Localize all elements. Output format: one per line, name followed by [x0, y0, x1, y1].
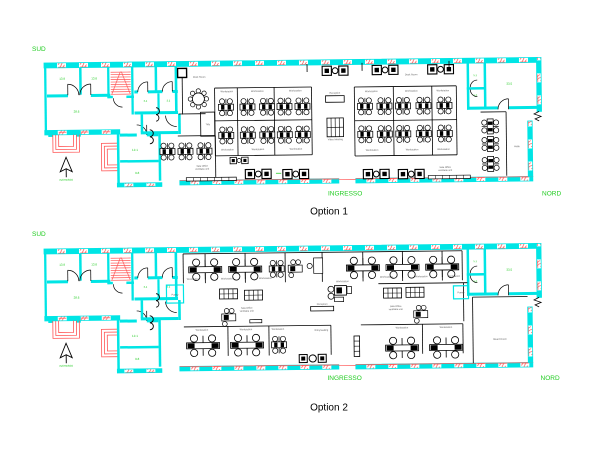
svg-text:Workstation: Workstation: [289, 89, 302, 92]
svg-text:INGRESSO: INGRESSO: [328, 191, 362, 198]
svg-text:Reception: Reception: [317, 303, 328, 306]
svg-text:INGRESSO: INGRESSO: [59, 178, 73, 182]
svg-text:5.0: 5.0: [474, 279, 478, 283]
svg-text:28.6: 28.6: [74, 296, 80, 300]
svg-text:Entry/waiting: Entry/waiting: [315, 329, 329, 332]
svg-text:13.6: 13.6: [91, 262, 97, 266]
svg-text:Workstation: Workstation: [396, 326, 409, 329]
svg-text:Hallo: Hallo: [514, 145, 520, 148]
svg-text:9.8: 9.8: [135, 357, 140, 361]
svg-text:5.1: 5.1: [473, 259, 477, 263]
svg-text:Workstation: Workstation: [448, 275, 461, 278]
svg-text:Option 2: Option 2: [310, 403, 348, 414]
svg-text:Tidy: Tidy: [205, 123, 210, 126]
svg-text:3.4: 3.4: [144, 285, 148, 289]
svg-text:33.5: 33.5: [506, 82, 512, 86]
svg-text:ventilatie unit: ventilatie unit: [389, 308, 403, 311]
svg-text:Workstation: Workstation: [336, 280, 349, 283]
svg-text:13.6: 13.6: [91, 76, 97, 80]
svg-text:3.4: 3.4: [144, 99, 148, 103]
svg-text:Workstation: Workstation: [221, 277, 234, 280]
svg-text:Desk Room: Desk Room: [193, 76, 206, 79]
svg-text:Workstation: Workstation: [221, 90, 234, 93]
svg-text:Workstation: Workstation: [440, 326, 453, 329]
svg-text:3.2: 3.2: [167, 99, 171, 103]
svg-text:ventilatie unit: ventilatie unit: [438, 169, 452, 172]
svg-text:Pantry: Pantry: [172, 293, 180, 296]
svg-text:Option 1: Option 1: [310, 207, 348, 218]
svg-text:Workstation: Workstation: [365, 90, 378, 93]
svg-text:9.8: 9.8: [135, 171, 140, 175]
svg-text:Workstation: Workstation: [437, 148, 450, 151]
svg-text:NORD: NORD: [542, 191, 561, 198]
svg-text:Workstation: Workstation: [252, 148, 265, 151]
svg-text:12.1: 12.1: [132, 334, 138, 338]
svg-text:Workstation: Workstation: [272, 328, 285, 331]
svg-text:Workstation: Workstation: [366, 149, 379, 152]
svg-text:Workstation: Workstation: [415, 275, 428, 278]
svg-text:Workstation: Workstation: [251, 90, 264, 93]
svg-text:NORD: NORD: [541, 375, 560, 382]
svg-text:INGRESSO: INGRESSO: [59, 364, 73, 368]
svg-text:33.5: 33.5: [506, 268, 512, 272]
svg-text:13.9: 13.9: [59, 77, 65, 81]
svg-text:13.9: 13.9: [59, 263, 65, 267]
svg-text:Workstation: Workstation: [437, 89, 450, 92]
svg-text:Reception: Reception: [329, 92, 340, 95]
svg-text:28.6: 28.6: [74, 110, 80, 114]
svg-text:Workstation: Workstation: [406, 148, 419, 151]
svg-text:Video Meeting: Video Meeting: [328, 138, 344, 141]
svg-text:SUD: SUD: [32, 46, 46, 53]
svg-text:SUD: SUD: [32, 231, 46, 238]
svg-text:Workstation: Workstation: [221, 148, 234, 151]
svg-text:INGRESSO: INGRESSO: [328, 375, 362, 382]
svg-text:Workstation: Workstation: [187, 278, 200, 281]
svg-text:Desk Room: Desk Room: [405, 73, 418, 76]
svg-text:Board Room: Board Room: [493, 338, 506, 341]
svg-text:Workstation: Workstation: [259, 277, 272, 280]
svg-text:5.1: 5.1: [473, 73, 477, 77]
svg-text:Workstation: Workstation: [380, 276, 393, 279]
svg-text:Pantry: Pantry: [458, 291, 466, 294]
svg-text:5.0: 5.0: [474, 93, 478, 97]
svg-text:Workstation: Workstation: [290, 148, 303, 151]
svg-text:Workstation: Workstation: [240, 328, 253, 331]
svg-text:ventilatie unit: ventilatie unit: [195, 168, 209, 171]
svg-text:Workstation: Workstation: [196, 329, 209, 332]
svg-text:Workstation: Workstation: [405, 90, 418, 93]
svg-text:ventilatie unit: ventilatie unit: [240, 310, 254, 313]
svg-text:12.1: 12.1: [132, 148, 138, 152]
